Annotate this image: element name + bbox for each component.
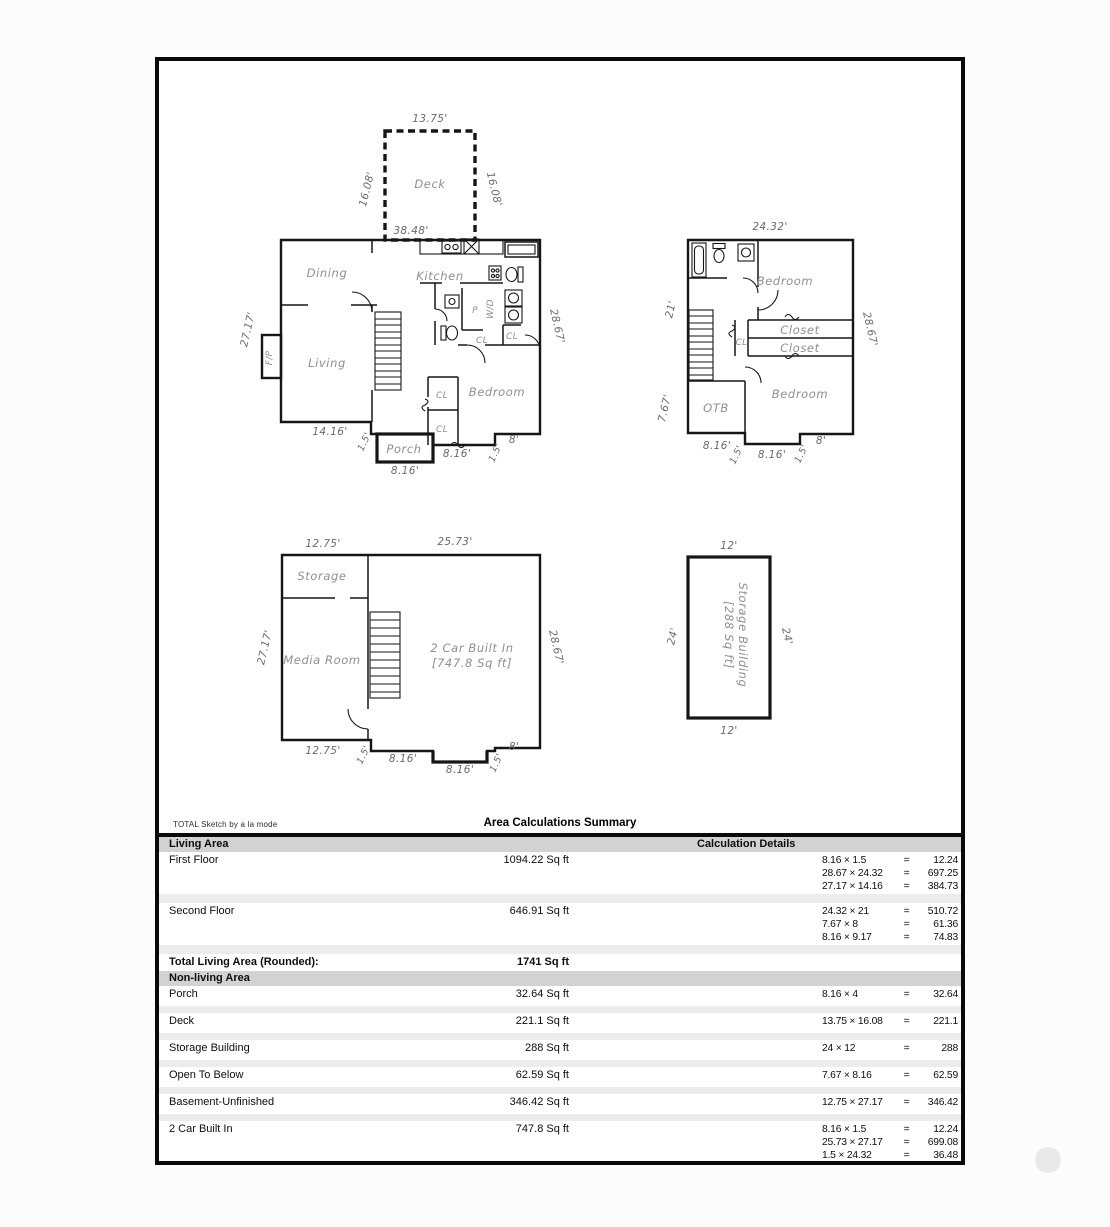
storage-building-label: Storage Building[288 Sq ft] (722, 583, 750, 688)
door-arc (352, 292, 372, 312)
top-dim: 12' (720, 540, 737, 552)
toilet-icon (713, 244, 725, 263)
table-row-deck: Deck 221.1 Sq ft 13.75 × 16.08=221.1 (159, 1013, 961, 1033)
table-row-open-to-below: Open To Below 62.59 Sq ft 7.67 × 8.16=62… (159, 1067, 961, 1087)
open-to-below-label: OTB (703, 401, 729, 415)
floor-plans-svg: Deck 13.75' 16.08' 16.08' 38.48' (159, 61, 961, 815)
bottom-right-dim: 8' (816, 435, 826, 447)
closet-label: CL (476, 336, 488, 346)
row-separator (159, 1033, 961, 1040)
step-dim: 1.5' (793, 443, 811, 465)
sketch-frame: Deck 13.75' 16.08' 16.08' 38.48' (155, 57, 965, 1165)
bottom-middle-dim: 8.16' (758, 449, 786, 461)
calc-details: 7.67 × 8.16=62.59 (822, 1069, 958, 1082)
door-arc (745, 367, 761, 383)
summary-title-row: TOTAL Sketch by a la mode Area Calculati… (159, 815, 961, 833)
toilet-icon (506, 267, 523, 282)
door-arc (758, 290, 778, 310)
pantry-label: P (472, 306, 478, 316)
first-floor-stairs-icon (375, 312, 401, 390)
garage-door-dim: 8.16' (446, 764, 474, 776)
bathtub-icon (692, 243, 706, 277)
storage-building-plan: Storage Building[288 Sq ft] 12' 12' 24' … (665, 540, 794, 737)
dryer-icon (505, 307, 522, 323)
bath-sink-icon (738, 244, 754, 261)
basement-stairs-icon (370, 612, 400, 698)
table-row-second-floor: Second Floor 646.91 Sq ft 24.32 × 21=510… (159, 903, 961, 945)
door-arc (743, 278, 758, 293)
porch-label: Porch (386, 442, 421, 456)
left-dim: 27.17' (238, 311, 258, 348)
stove-icon (442, 241, 461, 253)
left-dim: 24' (665, 626, 681, 646)
right-dim: 28.67' (547, 308, 567, 345)
row-separator (159, 1114, 961, 1121)
first-floor-plan: Deck 13.75' 16.08' 16.08' 38.48' (238, 113, 566, 477)
top-left-dim: 12.75' (305, 538, 340, 550)
door-arc (348, 709, 368, 729)
calc-details: 24 × 12=288 (822, 1042, 958, 1055)
bottom-middle-dim: 8.16' (389, 753, 417, 765)
row-separator (159, 1060, 961, 1067)
nonliving-area-header: Non-living Area (169, 971, 250, 986)
right-dim: 28.67' (860, 311, 880, 348)
sketch-page: Deck 13.75' 16.08' 16.08' 38.48' (0, 0, 1110, 1227)
door-arc (435, 309, 447, 321)
bedroom-label: Bedroom (772, 387, 828, 401)
table-row-porch: Porch 32.64 Sq ft 8.16 × 4=32.64 (159, 986, 961, 1006)
bottom-left-dim: 14.16' (312, 426, 347, 438)
calc-details: 13.75 × 16.08=221.1 (822, 1015, 958, 1028)
bottom-left-dim: 12.75' (305, 745, 340, 757)
washer-dryer-label: W/D (486, 299, 496, 319)
calc-details: 12.75 × 27.17=346.42 (822, 1096, 958, 1109)
kitchen-label: Kitchen (416, 269, 463, 283)
right-dim: 24' (779, 626, 795, 646)
closet-label: CL (436, 425, 448, 435)
row-separator (159, 1087, 961, 1094)
porch-dim: 8.16' (391, 465, 419, 477)
left-lower-dim: 7.67' (656, 393, 674, 423)
calc-details: 8.16 × 1.5=12.24 25.73 × 27.17=699.08 1.… (822, 1123, 958, 1163)
deck-right-dim: 16.08' (484, 171, 504, 208)
row-separator (159, 894, 961, 903)
refrigerator-icon (505, 242, 538, 257)
calc-details: 8.16 × 1.5=12.24 28.67 × 24.32=697.25 27… (822, 854, 958, 894)
table-row-first-floor: First Floor 1094.22 Sq ft 8.16 × 1.5=12.… (159, 852, 961, 894)
closet-label: CL (506, 332, 518, 342)
bottom-dim: 12' (720, 725, 737, 737)
basement-plan: Storage Media Room 2 Car Built In [747.8… (255, 536, 565, 776)
summary-title: Area Calculations Summary (159, 817, 961, 829)
toilet-icon (441, 326, 458, 340)
table-row-storage-building: Storage Building 288 Sq ft 24 × 12=288 (159, 1040, 961, 1060)
closet-label: CL (736, 338, 748, 348)
row-separator (159, 1006, 961, 1013)
washer-icon (505, 290, 522, 306)
calc-details: 8.16 × 4=32.64 (822, 988, 958, 1001)
door-arc (467, 345, 485, 363)
laundry-sink-icon (489, 266, 501, 280)
garage-door-opening (433, 751, 487, 762)
calc-details: 24.32 × 21=510.72 7.67 × 8=61.36 8.16 × … (822, 905, 958, 945)
deck-label: Deck (414, 177, 446, 191)
total-living-area-row: Total Living Area (Rounded): 1741 Sq ft (159, 954, 961, 971)
left-upper-dim: 21' (663, 299, 679, 319)
door-arc (525, 335, 540, 350)
storage-label: Storage (297, 569, 346, 583)
table-row-basement-unfinished: Basement-Unfinished 346.42 Sq ft 12.75 ×… (159, 1094, 961, 1114)
left-dim: 27.17' (255, 629, 275, 666)
table-row-2-car-built-in: 2 Car Built In 747.8 Sq ft 8.16 × 1.5=12… (159, 1121, 961, 1163)
step-dim: 1.5' (488, 752, 506, 774)
bottom-right-dim: 8' (509, 434, 519, 446)
right-dim: 28.67' (546, 629, 566, 666)
dining-label: Dining (307, 266, 348, 280)
living-area-header: Living Area (169, 837, 229, 852)
top-dim: 24.32' (752, 221, 787, 233)
closet-label: Closet (780, 323, 819, 337)
living-area-header-row: Living Area Calculation Details (159, 837, 961, 852)
calculation-details-header: Calculation Details (697, 837, 795, 852)
second-floor-stairs-icon (689, 310, 713, 380)
media-room-label: Media Room (283, 653, 360, 667)
bath-sink-icon (445, 295, 459, 308)
deck-left-dim: 16.08' (357, 171, 377, 208)
bottom-left-dim: 8.16' (703, 440, 731, 452)
second-floor-plan: Bedroom Closet Closet CL OTB Bedroom 24.… (656, 221, 880, 466)
garage-label-line1: 2 Car Built In (430, 641, 513, 655)
nonliving-area-header-row: Non-living Area (159, 971, 961, 986)
bedroom-label: Bedroom (757, 274, 813, 288)
living-label: Living (308, 356, 346, 370)
overall-width-dim: 38.48' (393, 225, 428, 237)
bedroom-label: Bedroom (469, 385, 525, 399)
bottom-middle-dim: 8.16' (443, 448, 471, 460)
top-right-dim: 25.73' (437, 536, 472, 548)
deck-width-dim: 13.75' (412, 113, 447, 125)
closet-label: CL (436, 391, 448, 401)
fireplace-label: F/P (265, 350, 275, 365)
closet-label: Closet (780, 341, 819, 355)
floor-plan-sketch-area: Deck 13.75' 16.08' 16.08' 38.48' (159, 61, 961, 815)
row-separator (159, 945, 961, 954)
garage-label-line2: [747.8 Sq ft] (432, 656, 512, 670)
bottom-right-dim: 8' (509, 741, 519, 753)
watermark-smudge (1035, 1147, 1061, 1173)
area-calculations-table: Living Area Calculation Details First Fl… (159, 833, 961, 1161)
